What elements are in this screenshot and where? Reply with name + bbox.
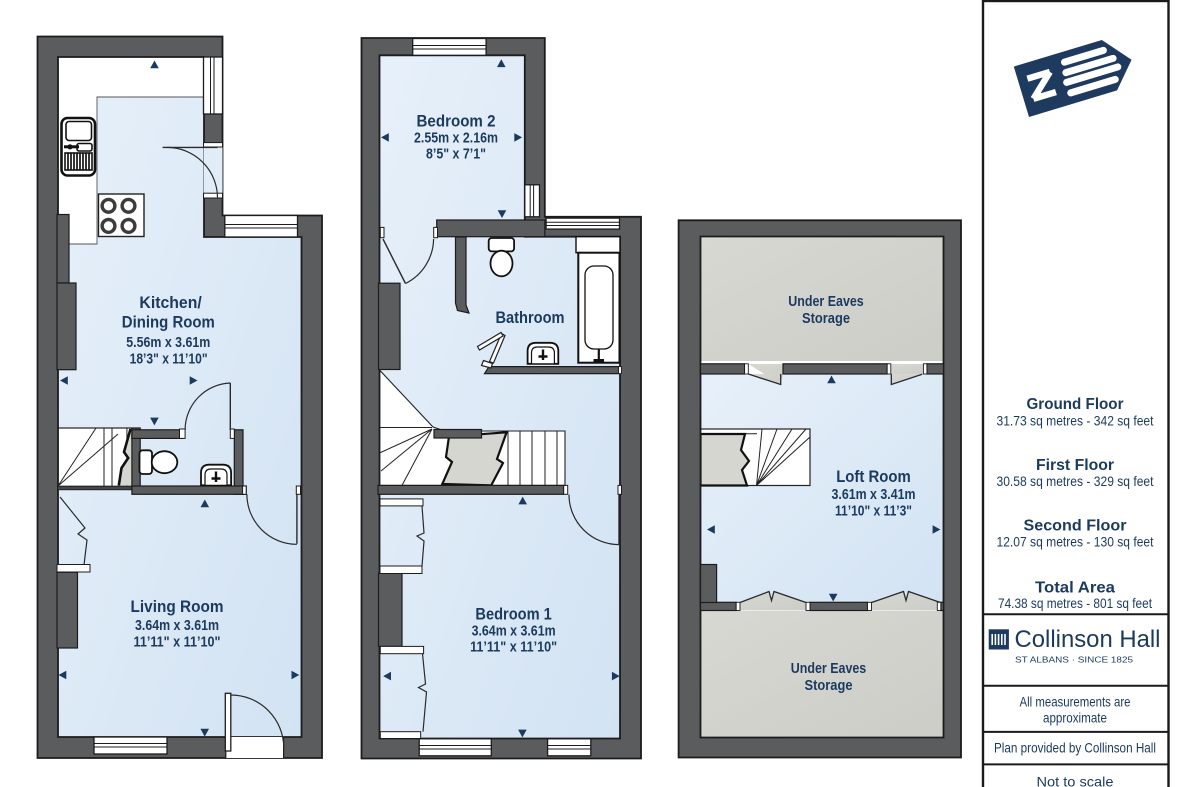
svg-text:3.61m x 3.41m: 3.61m x 3.41m: [832, 487, 916, 503]
svg-text:30.58 sq metres - 329 sq feet: 30.58 sq metres - 329 sq feet: [997, 473, 1154, 489]
svg-text:74.38 sq metres - 801 sq feet: 74.38 sq metres - 801 sq feet: [998, 595, 1152, 611]
svg-text:2.55m x 2.16m: 2.55m x 2.16m: [414, 131, 498, 147]
svg-text:11’11" x 11’10": 11’11" x 11’10": [134, 635, 221, 651]
svg-text:11’11" x 11’10": 11’11" x 11’10": [470, 640, 557, 656]
svg-text:5.56m x 3.61m: 5.56m x 3.61m: [126, 335, 210, 351]
svg-text:Bedroom 2: Bedroom 2: [417, 113, 496, 131]
svg-text:12.07 sq metres - 130 sq feet: 12.07 sq metres - 130 sq feet: [997, 534, 1154, 550]
svg-text:Storage: Storage: [802, 311, 850, 327]
svg-text:3.64m x 3.61m: 3.64m x 3.61m: [135, 618, 219, 634]
svg-text:First Floor: First Floor: [1036, 457, 1114, 474]
svg-text:Under Eaves: Under Eaves: [788, 294, 864, 310]
svg-text:Kitchen/: Kitchen/: [139, 294, 202, 312]
svg-text:Ground Floor: Ground Floor: [1027, 396, 1124, 413]
svg-text:Storage: Storage: [805, 678, 853, 694]
svg-text:Total Area: Total Area: [1035, 579, 1115, 596]
svg-text:All measurements are: All measurements are: [1020, 694, 1131, 710]
svg-text:Plan provided by Collinson Hal: Plan provided by Collinson Hall: [994, 740, 1156, 756]
svg-text:Not to scale: Not to scale: [1037, 774, 1114, 787]
svg-text:Bedroom 1: Bedroom 1: [475, 606, 551, 624]
svg-text:3.64m x 3.61m: 3.64m x 3.61m: [472, 624, 556, 640]
svg-text:11’10" x 11’3": 11’10" x 11’3": [835, 504, 912, 520]
svg-text:Dining Room: Dining Room: [122, 314, 215, 332]
svg-text:ST ALBANS · SINCE 1825: ST ALBANS · SINCE 1825: [1015, 656, 1134, 665]
svg-text:18’3" x 11’10": 18’3" x 11’10": [130, 352, 208, 368]
svg-text:Second Floor: Second Floor: [1024, 518, 1127, 535]
svg-text:Loft Room: Loft Room: [836, 468, 911, 486]
svg-text:8’5" x 7’1": 8’5" x 7’1": [426, 147, 486, 163]
svg-text:Collinson Hall: Collinson Hall: [1015, 626, 1161, 653]
svg-text:Bathroom: Bathroom: [496, 309, 565, 327]
svg-text:31.73 sq metres - 342 sq feet: 31.73 sq metres - 342 sq feet: [997, 413, 1154, 429]
svg-text:Living Room: Living Room: [131, 598, 224, 616]
svg-text:approximate: approximate: [1043, 710, 1107, 726]
svg-text:Under Eaves: Under Eaves: [791, 661, 867, 677]
